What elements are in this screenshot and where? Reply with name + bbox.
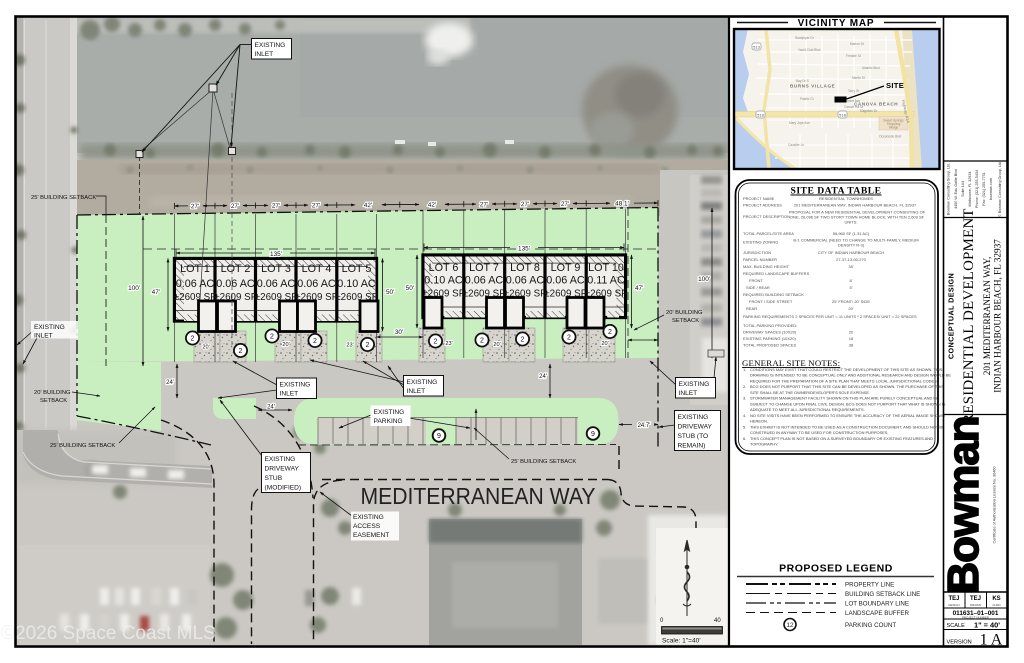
svg-text:REQUIRED FOR THE PREPARATION O: REQUIRED FOR THE PREPARATION OF A SITE P… (750, 378, 938, 383)
svg-text:23': 23' (346, 343, 353, 349)
svg-text:2: 2 (191, 336, 195, 343)
svg-text:DRIVEWAY: DRIVEWAY (678, 424, 713, 431)
svg-text:2: 2 (239, 348, 243, 355)
svg-text:2 SPACES PER UNIT = 11 UNITS *: 2 SPACES PER UNIT = 11 UNITS * 2 SPACES/… (795, 314, 917, 319)
svg-text:12: 12 (786, 622, 794, 629)
svg-text:TEJ: TEJ (948, 596, 959, 602)
svg-text:0.06 AC: 0.06 AC (506, 275, 545, 287)
svg-text:5': 5' (850, 285, 853, 290)
svg-text:Pacific Ct: Pacific Ct (800, 97, 814, 101)
svg-text:BURNS VILLAGE: BURNS VILLAGE (790, 84, 835, 89)
svg-text:47': 47' (635, 285, 643, 292)
svg-text:Cavalier Ln: Cavalier Ln (788, 143, 804, 147)
svg-text:INLET: INLET (255, 51, 274, 58)
svg-text:201 MEDITERRANEAN WAY, INDIAN: 201 MEDITERRANEAN WAY, INDIAN HARBOUR BE… (794, 203, 917, 208)
svg-text:2: 2 (270, 334, 274, 341)
svg-text:8': 8' (850, 278, 853, 283)
svg-text:DRAWING IS INTENDED TO BE CONC: DRAWING IS INTENDED TO BE CONCEPTUAL ONL… (750, 373, 951, 378)
svg-text:Bay Dr S: Bay Dr S (796, 79, 809, 83)
svg-text:Certificate of Authorization L: Certificate of Authorization License No.… (993, 466, 997, 543)
svg-text:UNITS.: UNITS. (844, 220, 857, 225)
svg-text:2: 2 (313, 338, 317, 345)
svg-text:18: 18 (849, 336, 854, 341)
svg-text:CHKD: CHKD (992, 603, 1000, 607)
svg-text:SETBACK: SETBACK (672, 318, 699, 324)
svg-text:MAX. BUILDING HEIGHT: MAX. BUILDING HEIGHT (743, 264, 790, 269)
svg-text:BUILDING SETBACK LINE: BUILDING SETBACK LINE (845, 591, 920, 598)
svg-text:SIDE / REAR: SIDE / REAR (746, 285, 770, 290)
svg-text:20': 20' (848, 306, 853, 311)
svg-text:© Bowman Consulting Group, Ltd: © Bowman Consulting Group, Ltd. (998, 161, 1002, 217)
svg-text:1.: 1. (743, 367, 746, 372)
svg-text:THIS CONCEPT PLAN IS NOT BASED: THIS CONCEPT PLAN IS NOT BASED ON A SURV… (750, 436, 933, 441)
svg-text:INLET: INLET (34, 333, 53, 340)
svg-text:0.06 AC: 0.06 AC (257, 278, 296, 290)
svg-text:RESIDENTIAL DEVELOPMENT: RESIDENTIAL DEVELOPMENT (961, 208, 977, 424)
svg-text:20' BUILDING: 20' BUILDING (34, 390, 71, 396)
svg-text:Freddie St: Freddie St (846, 54, 861, 58)
svg-text:EXISTING: EXISTING (280, 382, 311, 389)
svg-text:LOT 7: LOT 7 (469, 262, 499, 274)
svg-text:Phone: (321) 255-5434: Phone: (321) 255-5434 (975, 170, 979, 208)
svg-text:INLET: INLET (407, 388, 426, 395)
svg-text:SCALE: SCALE (947, 623, 966, 629)
svg-text:56,960 SF (1.31 AC): 56,960 SF (1.31 AC) (833, 231, 870, 236)
svg-text:38: 38 (849, 343, 854, 348)
svg-text:FRONT / SIDE STREET: FRONT / SIDE STREET (749, 299, 793, 304)
svg-text:2: 2 (521, 337, 525, 344)
svg-text:CITY OF INDIAN HARBOUR BEACH: CITY OF INDIAN HARBOUR BEACH (818, 250, 884, 255)
svg-text:DRAWN: DRAWN (970, 603, 981, 607)
svg-text:EXISTING: EXISTING (265, 456, 296, 463)
svg-text:EXISTING: EXISTING (678, 414, 709, 421)
svg-text:CONSTRUED IN ANYWAY TO BE USED: CONSTRUED IN ANYWAY TO BE USED FOR CONST… (750, 430, 889, 435)
svg-text:SITE: SITE (886, 81, 904, 90)
svg-text:EXISTING: EXISTING (353, 514, 384, 521)
svg-text:20': 20' (601, 341, 608, 347)
svg-text:PROPERTY LINE: PROPERTY LINE (845, 582, 894, 589)
svg-text:2: 2 (366, 342, 370, 349)
svg-text:THIS EXHIBIT IS NOT INTENDED T: THIS EXHIBIT IS NOT INTENDED TO BE USED … (750, 424, 945, 429)
svg-text:40: 40 (714, 618, 721, 624)
svg-text:0.06 AC: 0.06 AC (297, 278, 336, 290)
svg-text:9: 9 (437, 433, 441, 440)
svg-text:50': 50' (386, 289, 394, 296)
svg-text:Magellan Dr: Magellan Dr (860, 109, 878, 113)
svg-text:0.06 AC: 0.06 AC (216, 278, 255, 290)
svg-text:20' BUILDING: 20' BUILDING (666, 310, 703, 316)
svg-text:35': 35' (848, 264, 853, 269)
svg-text:INLET: INLET (280, 391, 299, 398)
svg-text:LOT 6: LOT 6 (429, 262, 459, 274)
svg-text:100': 100' (698, 276, 710, 283)
svg-text:PARKING: PARKING (374, 418, 403, 425)
svg-text:RESIDENTIAL TOWNHOMES: RESIDENTIAL TOWNHOMES (819, 196, 873, 201)
svg-text:Suite 144: Suite 144 (961, 181, 965, 197)
svg-text:4.: 4. (743, 413, 746, 418)
svg-text:EXISTING ZONING: EXISTING ZONING (743, 240, 778, 245)
svg-text:135': 135' (518, 246, 530, 253)
svg-text:STUB (TO: STUB (TO (678, 433, 709, 440)
svg-text:27': 27' (191, 203, 199, 210)
svg-text:VICINITY MAP: VICINITY MAP (798, 18, 875, 29)
svg-text:25' BUILDING SETBACK: 25' BUILDING SETBACK (31, 195, 96, 201)
svg-text:TEJ: TEJ (970, 596, 981, 602)
svg-text:5.: 5. (743, 424, 746, 429)
svg-text:PARKING REQUIREMENTS: PARKING REQUIREMENTS (743, 314, 794, 319)
svg-text:2.: 2. (743, 384, 746, 389)
svg-text:PROJECT DESCRIPTION: PROJECT DESCRIPTION (743, 214, 790, 219)
svg-text:50': 50' (406, 285, 414, 292)
svg-text:HEREON.: HEREON. (750, 419, 768, 424)
svg-text:bowman.com: bowman.com (989, 178, 993, 200)
svg-text:(MODIFIED): (MODIFIED) (265, 485, 302, 492)
svg-text:2: 2 (567, 335, 571, 342)
svg-text:REMAIN): REMAIN) (678, 443, 706, 450)
svg-text:6.: 6. (743, 436, 746, 441)
svg-text:Atlantic Blvd: Atlantic Blvd (862, 66, 880, 70)
svg-text:0.10 AC: 0.10 AC (424, 275, 463, 287)
svg-text:EXISTING PARKING (10X20): EXISTING PARKING (10X20) (743, 336, 796, 341)
svg-text:Tarry St: Tarry St (848, 89, 859, 93)
svg-text:LOT 9: LOT 9 (551, 262, 581, 274)
svg-text:ADEQUATE TO MEET ALL JURISDICT: ADEQUATE TO MEET ALL JURISDICTIONAL REQU… (750, 407, 865, 412)
svg-text:DESIGN: DESIGN (948, 603, 959, 607)
svg-text:MEDITERRANEAN WAY: MEDITERRANEAN WAY (361, 483, 596, 509)
svg-text:9: 9 (591, 431, 595, 438)
svg-text:©2026 Space Coast MLS: ©2026 Space Coast MLS (1, 623, 216, 644)
svg-text:Fax: (321) 255-7751: Fax: (321) 255-7751 (982, 172, 986, 205)
svg-text:LOT 10: LOT 10 (588, 262, 624, 274)
svg-text:20: 20 (849, 330, 854, 335)
svg-text:JURISDICTION: JURISDICTION (743, 250, 771, 255)
svg-text:STORMWATER MANAGEMENT FACILITY: STORMWATER MANAGEMENT FACILITY SHOWN ON … (750, 396, 938, 401)
svg-text:KS: KS (992, 596, 1000, 602)
svg-text:Oceanside Blvd: Oceanside Blvd (879, 135, 902, 139)
svg-text:0.06 AC: 0.06 AC (465, 275, 504, 287)
svg-text:DENSITY R-3): DENSITY R-3) (838, 243, 865, 248)
svg-text:518: 518 (757, 112, 764, 117)
svg-text:25' BUILDING SETBACK: 25' BUILDING SETBACK (50, 443, 115, 449)
svg-text:20': 20' (202, 345, 209, 351)
svg-text:24': 24' (267, 405, 275, 411)
svg-text:SITE DATA TABLE: SITE DATA TABLE (790, 186, 881, 197)
svg-text:CANOVA BEACH: CANOVA BEACH (854, 102, 898, 107)
svg-text:1" = 40': 1" = 40' (974, 621, 1000, 630)
svg-text:27-37-13-00-270: 27-37-13-00-270 (836, 257, 867, 262)
svg-text:27': 27' (521, 201, 529, 208)
svg-text:518: 518 (839, 112, 846, 117)
svg-text:NO SITE VISITS HAVE BEEN PERFO: NO SITE VISITS HAVE BEEN PERFORMED TO EN… (750, 413, 945, 418)
svg-text:SUBJECT TO CHANGE UPON FINAL C: SUBJECT TO CHANGE UPON FINAL CIVIL DESIG… (750, 401, 946, 406)
svg-text:REAR: REAR (746, 306, 757, 311)
svg-text:3.: 3. (743, 396, 746, 401)
svg-text:24': 24' (166, 380, 174, 386)
svg-text:LOT 2: LOT 2 (221, 263, 251, 275)
svg-text:Sandpiper Dr: Sandpiper Dr (795, 36, 815, 40)
svg-text:EASEMENT: EASEMENT (353, 532, 389, 539)
svg-text:135': 135' (270, 251, 282, 258)
svg-text:EXISTING: EXISTING (255, 42, 286, 49)
svg-text:PARKING COUNT: PARKING COUNT (845, 622, 896, 629)
svg-text:0.06 AC: 0.06 AC (546, 275, 585, 287)
svg-text:PROJECT NAME: PROJECT NAME (743, 196, 775, 201)
svg-text:0.11 AC: 0.11 AC (587, 275, 625, 287)
svg-text:100': 100' (128, 285, 140, 292)
svg-text:Village: Village (889, 126, 899, 130)
svg-text:INDIAN HARBOUR BEACH, FL 32937: INDIAN HARBOUR BEACH, FL 32937 (993, 239, 1003, 393)
svg-text:Scale: 1"=40': Scale: 1"=40' (662, 638, 701, 645)
svg-text:REQUIRED LANDSCAPE BUFFERS: REQUIRED LANDSCAPE BUFFERS (743, 271, 810, 276)
svg-text:LOT 4: LOT 4 (302, 263, 332, 275)
svg-text:24.7': 24.7' (638, 423, 651, 429)
svg-text:42': 42' (364, 202, 372, 209)
svg-text:DRIVEWAY SPACES (10X20): DRIVEWAY SPACES (10X20) (743, 330, 797, 335)
svg-text:INLET: INLET (679, 390, 698, 397)
svg-text:SITE SHALL BE AT THE OWNER/DEV: SITE SHALL BE AT THE OWNER/DEVELOPER'S S… (750, 390, 870, 395)
svg-text:LOT BOUNDARY LINE: LOT BOUNDARY LINE (845, 601, 909, 608)
svg-text:Bowman: Bowman (939, 416, 988, 593)
svg-text:48.1': 48.1' (615, 200, 629, 207)
svg-text:47': 47' (152, 289, 160, 296)
svg-text:Yacht Club Blvd: Yacht Club Blvd (798, 48, 821, 52)
svg-text:LOT 3: LOT 3 (261, 263, 291, 275)
svg-text:LOT 8: LOT 8 (510, 262, 540, 274)
svg-text:VERSION: VERSION (947, 640, 972, 646)
svg-text:REQUIRED BUILDING SETBACK: REQUIRED BUILDING SETBACK (743, 292, 804, 297)
svg-text:27': 27' (561, 201, 569, 208)
svg-text:EXISTING: EXISTING (374, 409, 405, 416)
svg-text:DRIVEWAY: DRIVEWAY (265, 466, 300, 473)
svg-text:27': 27' (480, 201, 488, 208)
svg-text:LOT 1: LOT 1 (180, 263, 210, 275)
svg-text:2: 2 (608, 329, 612, 336)
svg-text:0.10 AC: 0.10 AC (337, 278, 376, 290)
svg-text:27': 27' (231, 203, 239, 210)
svg-text:Bowman Consulting Group, Ltd.: Bowman Consulting Group, Ltd. (947, 163, 951, 215)
svg-text:27': 27' (272, 203, 280, 210)
svg-text:Mary Joye Ave: Mary Joye Ave (789, 121, 810, 125)
svg-text:TOTAL PARKING PROVIDED:: TOTAL PARKING PROVIDED: (743, 323, 797, 328)
svg-text:CONDITIONS MAY EXIST THAT COUL: CONDITIONS MAY EXIST THAT COULD RESTRICT… (750, 367, 943, 372)
svg-text:201 MEDITERRANEAN WAY,: 201 MEDITERRANEAN WAY, (982, 257, 992, 376)
svg-text:Melbourne, FL 32934: Melbourne, FL 32934 (968, 172, 972, 207)
svg-text:30': 30' (395, 329, 403, 336)
svg-text:PARCEL NUMBER: PARCEL NUMBER (743, 257, 777, 262)
svg-text:23': 23' (445, 341, 452, 347)
svg-text:ACCESS: ACCESS (353, 523, 381, 530)
svg-text:2: 2 (434, 339, 438, 346)
svg-text:4450 W. Eau Gallie Blvd: 4450 W. Eau Gallie Blvd (954, 169, 958, 209)
svg-text:LOT 5: LOT 5 (342, 263, 372, 275)
svg-text:20': 20' (282, 342, 289, 348)
svg-text:EXISTING: EXISTING (34, 324, 65, 331)
svg-text:LANDSCAPE BUFFER: LANDSCAPE BUFFER (845, 610, 909, 617)
svg-text:PROPOSED LEGEND: PROPOSED LEGEND (779, 563, 893, 575)
svg-text:42': 42' (428, 202, 436, 209)
svg-text:PROJECT ADDRESS: PROJECT ADDRESS (743, 203, 782, 208)
svg-text:EXISTING: EXISTING (679, 381, 710, 388)
svg-text:FRONT: FRONT (749, 278, 763, 283)
svg-text:TOTAL PROPOSED SPACES: TOTAL PROPOSED SPACES (743, 343, 797, 348)
svg-text:25' FRONT/ 20' SIDE: 25' FRONT/ 20' SIDE (832, 299, 870, 304)
svg-text:Marion St: Marion St (850, 42, 864, 46)
svg-text:SETBACK: SETBACK (40, 398, 67, 404)
svg-text:CONCEPTUAL DESIGN: CONCEPTUAL DESIGN (947, 273, 956, 359)
svg-text:0.06 AC: 0.06 AC (176, 278, 215, 290)
svg-text:STUB: STUB (265, 475, 283, 482)
svg-text:513: 513 (753, 44, 760, 49)
svg-text:TOPOGRAPHY.: TOPOGRAPHY. (750, 442, 778, 447)
svg-text:24': 24' (539, 374, 547, 380)
svg-text:EXISTING: EXISTING (407, 379, 438, 386)
svg-text:27': 27' (312, 202, 320, 209)
svg-text:25' BUILDING SETBACK: 25' BUILDING SETBACK (511, 459, 576, 465)
svg-text:2: 2 (480, 338, 484, 345)
svg-text:BCG DOES NOT PURPORT THAT THIS: BCG DOES NOT PURPORT THAT THIS SITE CAN … (750, 384, 944, 389)
svg-text:20': 20' (493, 342, 500, 348)
svg-text:TOTAL PARCEL/SITE AREA: TOTAL PARCEL/SITE AREA (743, 231, 794, 236)
svg-text:Mertle St: Mertle St (852, 76, 865, 80)
